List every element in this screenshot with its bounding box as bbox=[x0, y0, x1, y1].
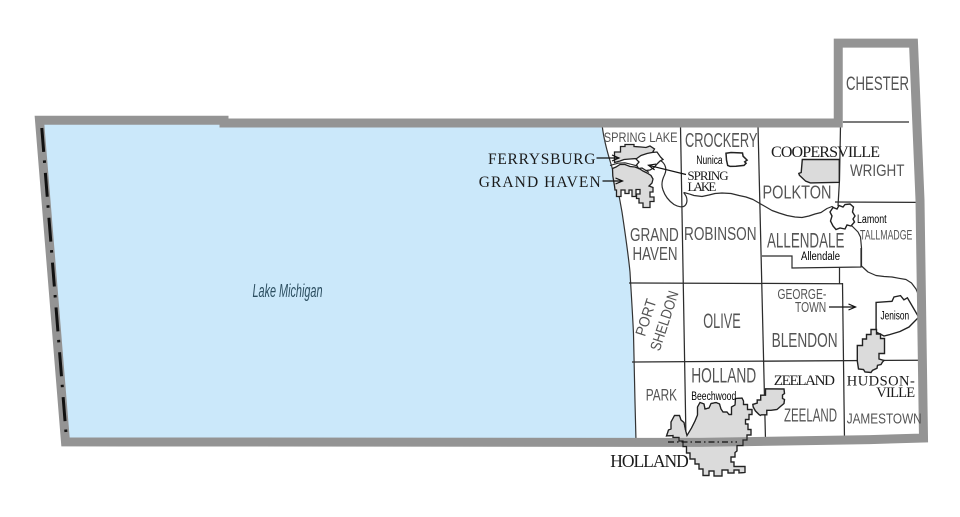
svg-text:GRAND: GRAND bbox=[630, 225, 679, 245]
svg-text:PARK: PARK bbox=[646, 386, 677, 404]
svg-text:Lamont: Lamont bbox=[857, 214, 887, 226]
svg-text:GRAND HAVEN: GRAND HAVEN bbox=[479, 174, 601, 191]
svg-text:SPRING LAKE: SPRING LAKE bbox=[604, 129, 678, 145]
svg-text:ROBINSON: ROBINSON bbox=[684, 223, 757, 244]
svg-text:HAVEN: HAVEN bbox=[633, 244, 678, 264]
svg-text:VILLE: VILLE bbox=[876, 385, 915, 401]
svg-text:WRIGHT: WRIGHT bbox=[850, 161, 905, 180]
svg-text:Jenison: Jenison bbox=[880, 311, 909, 323]
svg-text:LAKE: LAKE bbox=[688, 179, 717, 194]
svg-text:TOWN: TOWN bbox=[795, 300, 826, 316]
svg-text:JAMESTOWN: JAMESTOWN bbox=[847, 412, 922, 428]
svg-text:CHESTER: CHESTER bbox=[846, 74, 909, 95]
svg-text:OLIVE: OLIVE bbox=[703, 309, 741, 333]
svg-text:COOPERSVILLE: COOPERSVILLE bbox=[771, 144, 880, 161]
svg-text:FERRYSBURG: FERRYSBURG bbox=[488, 151, 595, 168]
svg-text:ZEELAND: ZEELAND bbox=[774, 373, 835, 389]
svg-text:BLENDON: BLENDON bbox=[772, 329, 838, 352]
svg-text:TALLMADGE: TALLMADGE bbox=[860, 227, 912, 242]
svg-text:POLKTON: POLKTON bbox=[763, 181, 832, 202]
svg-text:Beechwood: Beechwood bbox=[691, 391, 736, 403]
svg-text:Nunica: Nunica bbox=[696, 155, 723, 167]
svg-text:Lake Michigan: Lake Michigan bbox=[253, 281, 323, 301]
svg-text:HOLLAND: HOLLAND bbox=[610, 451, 689, 471]
svg-text:CROCKERY: CROCKERY bbox=[685, 130, 758, 152]
svg-text:ZEELAND: ZEELAND bbox=[784, 405, 837, 426]
svg-text:HOLLAND: HOLLAND bbox=[691, 364, 756, 388]
svg-text:Allendale: Allendale bbox=[801, 251, 840, 263]
svg-text:ALLENDALE: ALLENDALE bbox=[767, 229, 844, 253]
